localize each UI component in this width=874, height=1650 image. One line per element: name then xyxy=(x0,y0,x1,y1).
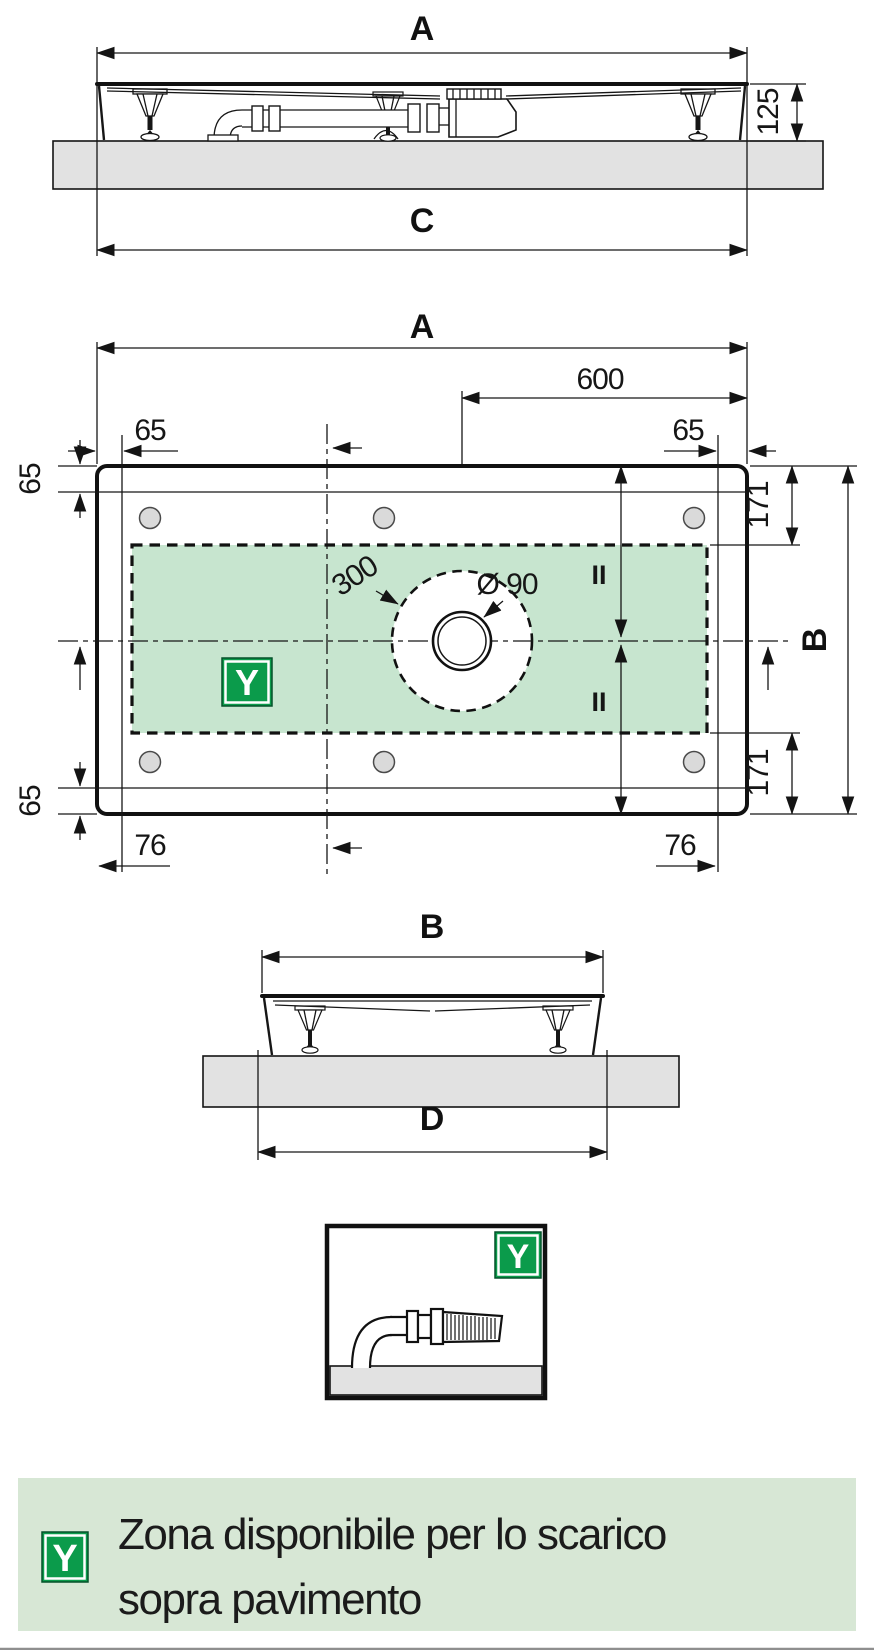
legend: Y Zona disponibile per lo scarico sopra … xyxy=(0,1478,874,1649)
plan-view: A 600 300 Ø 90 xyxy=(14,308,857,876)
dim-c: C xyxy=(410,202,435,240)
adjustable-foot xyxy=(543,1006,573,1053)
foot-circle xyxy=(374,752,395,773)
plan-dim-65-top-right: 65 xyxy=(672,414,704,447)
equal-mark-bottom: II xyxy=(591,687,606,717)
plan-dim-drain-diameter: Ø 90 xyxy=(476,568,537,601)
equal-mark-top: II xyxy=(591,560,606,590)
plan-dim-76-left: 76 xyxy=(134,829,166,862)
plan-dim-65-top-left: 65 xyxy=(134,414,166,447)
plan-dim-171-top: 171 xyxy=(742,481,775,528)
plan-dim-76-right: 76 xyxy=(664,829,696,862)
corrugated-hose xyxy=(443,1312,502,1342)
bottom-dim-b: B xyxy=(420,908,445,946)
plan-dim-171-bottom: 171 xyxy=(742,749,775,796)
drain-hole xyxy=(433,612,491,670)
dim-125: 125 xyxy=(752,88,785,135)
legend-line-2: sopra pavimento xyxy=(118,1575,421,1624)
shower-tray-installation-drawing: A xyxy=(0,0,874,1650)
shower-tray-outline xyxy=(97,84,747,140)
foot-circle xyxy=(684,508,705,529)
plan-dim-b: B xyxy=(796,628,834,653)
zone-badge-y: Y xyxy=(222,658,272,706)
foot-circle xyxy=(140,752,161,773)
detail-badge-label: Y xyxy=(507,1238,530,1276)
adjustable-foot xyxy=(133,89,167,141)
side-view-top: A xyxy=(53,10,823,256)
drain-trap xyxy=(449,99,516,137)
floor-slab xyxy=(53,141,823,189)
legend-badge-y: Y xyxy=(42,1532,88,1582)
adjustable-foot xyxy=(681,89,715,141)
foot-circle xyxy=(374,508,395,529)
detail-badge-y: Y xyxy=(495,1232,541,1278)
plan-dim-a: A xyxy=(410,308,435,346)
legend-line-1: Zona disponibile per lo scarico xyxy=(118,1510,666,1559)
plan-dim-600: 600 xyxy=(576,363,623,396)
detail-box: Y xyxy=(327,1226,545,1398)
technical-drawing-page: A xyxy=(0,0,874,1650)
foot-circle xyxy=(684,752,705,773)
legend-badge-label: Y xyxy=(52,1538,77,1580)
plan-zone-badge-label: Y xyxy=(235,662,259,703)
floor-slab xyxy=(330,1366,542,1395)
drain-pipe xyxy=(208,104,449,141)
dim-a-top: A xyxy=(410,10,435,48)
bottom-dim-d: D xyxy=(420,1100,445,1138)
plan-dim-65-left-top: 65 xyxy=(14,463,47,495)
plan-dim-65-left-bottom: 65 xyxy=(14,785,47,817)
side-view-bottom: B xyxy=(203,908,679,1160)
foot-circle xyxy=(140,508,161,529)
adjustable-foot xyxy=(295,1006,325,1053)
